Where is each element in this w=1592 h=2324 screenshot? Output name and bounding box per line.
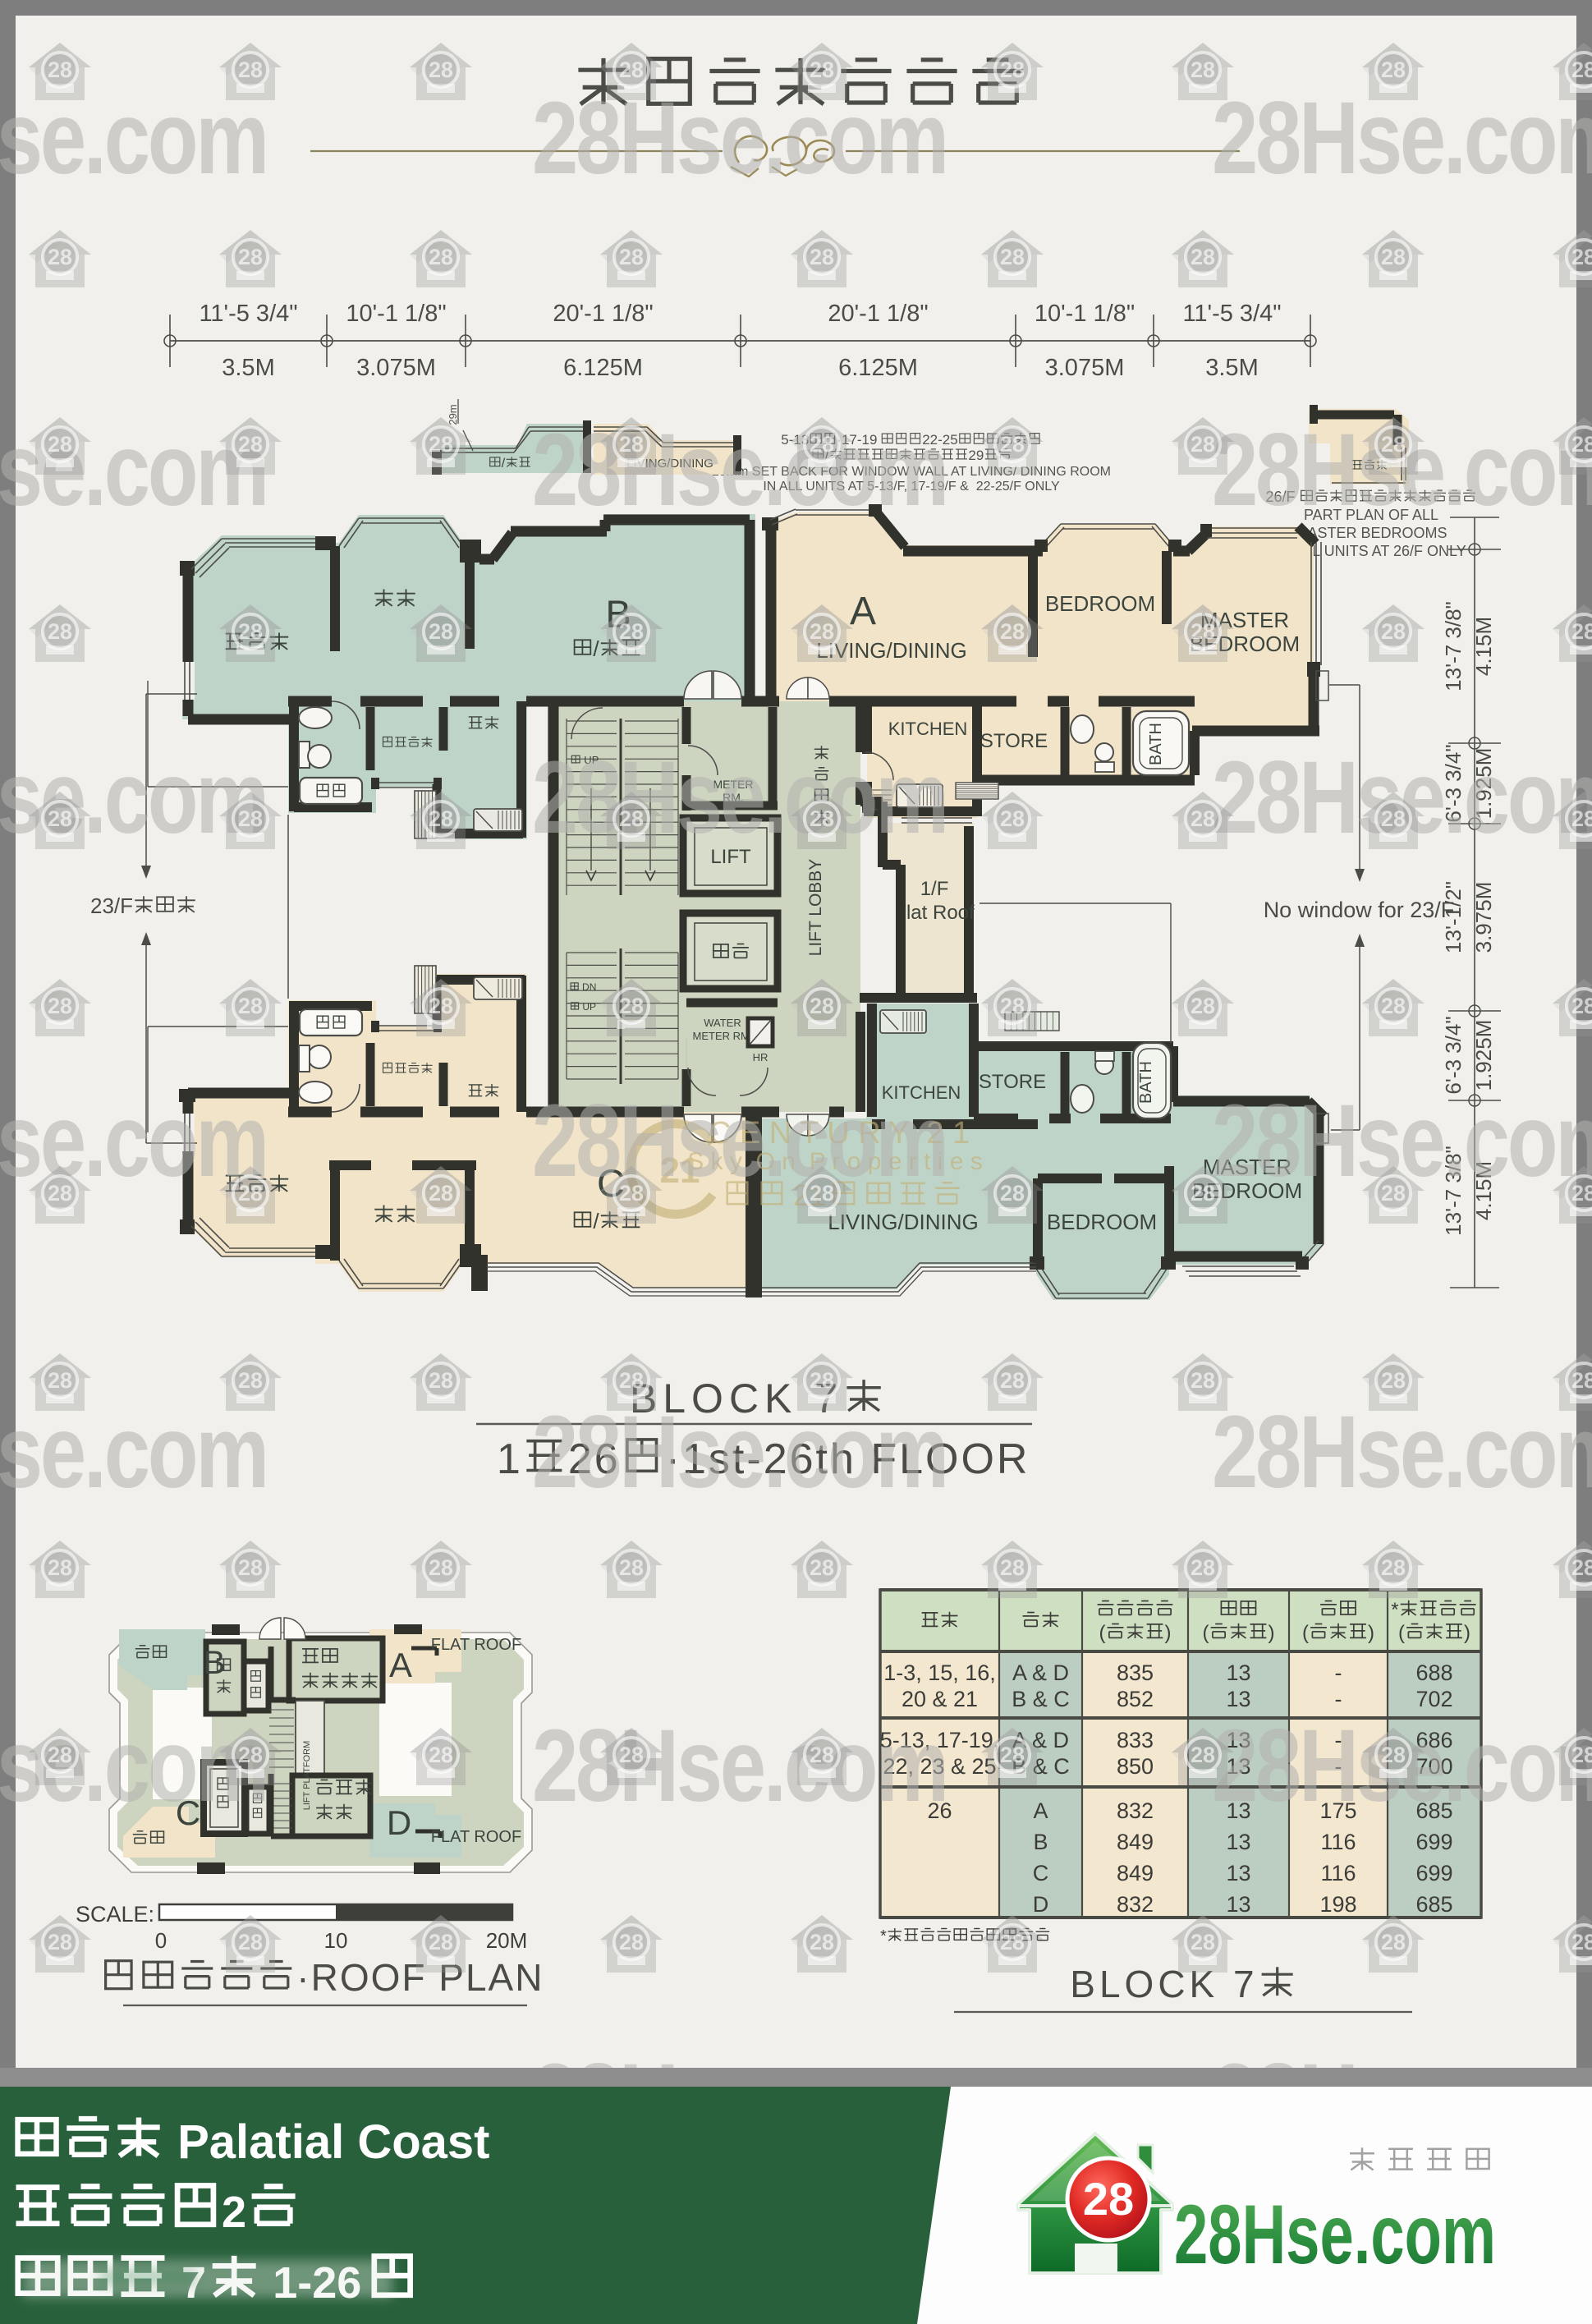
svg-text:MASTER BEDROOMS: MASTER BEDROOMS <box>1295 525 1447 541</box>
svg-text:28: 28 <box>1571 1555 1592 1580</box>
svg-text:): ) <box>1165 1622 1172 1644</box>
svg-text:BATH: BATH <box>1137 1061 1155 1104</box>
svg-text:198: 198 <box>1319 1892 1356 1917</box>
svg-text:835: 835 <box>1117 1660 1154 1685</box>
svg-text:STORE: STORE <box>979 1071 1046 1093</box>
svg-text:28: 28 <box>619 432 644 457</box>
svg-text:28Hse.com: 28Hse.com <box>532 1395 947 1509</box>
svg-text:20'-1 1/8": 20'-1 1/8" <box>553 301 653 327</box>
svg-text:1-3, 15, 16,: 1-3, 15, 16, <box>883 1660 996 1685</box>
svg-text:28: 28 <box>1000 432 1025 457</box>
svg-text:-: - <box>1335 1660 1342 1685</box>
svg-text:*: * <box>1391 1599 1398 1621</box>
svg-text:28: 28 <box>238 994 263 1018</box>
svg-text:28: 28 <box>238 1368 263 1393</box>
svg-text:11'-5 3/4": 11'-5 3/4" <box>1182 301 1281 327</box>
svg-text:28: 28 <box>429 1555 453 1580</box>
svg-text:3.075M: 3.075M <box>356 355 436 381</box>
svg-text:850: 850 <box>1117 1754 1154 1779</box>
svg-text:(: ( <box>1203 1622 1209 1644</box>
svg-text:B: B <box>204 1645 226 1681</box>
svg-text:10'-1 1/8": 10'-1 1/8" <box>1035 301 1135 327</box>
svg-text:A: A <box>389 1646 412 1684</box>
svg-text:28: 28 <box>1191 806 1215 831</box>
svg-text:28: 28 <box>810 994 834 1018</box>
svg-text:116: 116 <box>1320 1830 1356 1854</box>
svg-text:FLAT ROOF: FLAT ROOF <box>431 1828 521 1846</box>
svg-text:LIFT LOBBY: LIFT LOBBY <box>806 859 825 957</box>
svg-text:28: 28 <box>619 1743 644 1767</box>
svg-text:28: 28 <box>810 1181 834 1206</box>
svg-text:28: 28 <box>1000 1368 1025 1393</box>
svg-text:28: 28 <box>429 806 453 831</box>
svg-text:28: 28 <box>1083 2173 1134 2225</box>
svg-text:STORE: STORE <box>980 730 1048 752</box>
svg-text:13: 13 <box>1226 1830 1250 1854</box>
svg-text:13: 13 <box>1226 1687 1250 1711</box>
svg-text:(: ( <box>1398 1622 1405 1644</box>
svg-text:28Hse.com: 28Hse.com <box>532 1084 947 1198</box>
svg-text:685: 685 <box>1415 1892 1452 1917</box>
svg-text:28: 28 <box>1191 245 1215 269</box>
svg-text:20'-1 1/8": 20'-1 1/8" <box>828 301 928 327</box>
svg-text:28: 28 <box>619 1930 644 1954</box>
svg-text:10'-1 1/8": 10'-1 1/8" <box>346 301 446 327</box>
svg-text:23/F: 23/F <box>90 893 133 918</box>
svg-text:HR: HR <box>753 1051 768 1063</box>
svg-text:28Hse.com: 28Hse.com <box>0 1084 267 1198</box>
svg-text:-: - <box>1335 1687 1342 1711</box>
svg-text:28: 28 <box>810 1555 834 1580</box>
svg-text:28: 28 <box>619 1368 644 1393</box>
svg-text:28: 28 <box>810 245 834 269</box>
svg-text:): ) <box>1269 1622 1275 1644</box>
svg-text:METER RM.: METER RM. <box>693 1030 753 1042</box>
svg-text:11'-5 3/4": 11'-5 3/4" <box>199 301 297 327</box>
svg-text:Palatial Coast: Palatial Coast <box>164 2115 489 2169</box>
svg-text:28: 28 <box>1000 1181 1025 1206</box>
svg-text:28: 28 <box>238 1743 263 1767</box>
svg-text:1.925M: 1.925M <box>1471 1020 1496 1091</box>
svg-text:28: 28 <box>810 57 834 82</box>
svg-text:28: 28 <box>238 245 263 269</box>
svg-text:28: 28 <box>48 1743 72 1767</box>
svg-text:D: D <box>1033 1892 1049 1917</box>
svg-text:28: 28 <box>619 1181 644 1206</box>
svg-text:28: 28 <box>1381 1181 1406 1206</box>
svg-text:BEDROOM: BEDROOM <box>1047 1210 1157 1234</box>
svg-text:28: 28 <box>238 619 263 644</box>
svg-text:): ) <box>1368 1622 1374 1644</box>
svg-text:LIVING/DINING: LIVING/DINING <box>828 1210 978 1234</box>
svg-text:28: 28 <box>1571 432 1592 457</box>
svg-text:(: ( <box>1302 1622 1309 1644</box>
svg-text:20 & 21: 20 & 21 <box>902 1687 978 1711</box>
svg-text:28: 28 <box>619 57 644 82</box>
svg-text:28: 28 <box>429 432 453 457</box>
svg-text:116: 116 <box>1320 1861 1356 1885</box>
svg-text:28: 28 <box>48 619 72 644</box>
svg-text:28: 28 <box>810 1930 834 1954</box>
svg-text:28: 28 <box>1000 994 1025 1018</box>
svg-text:A: A <box>850 590 876 633</box>
svg-text:28: 28 <box>1571 245 1592 269</box>
svg-text:28: 28 <box>48 57 72 82</box>
svg-text:28: 28 <box>1191 994 1215 1018</box>
svg-text:28Hse.com: 28Hse.com <box>532 81 947 195</box>
svg-text:No window for 23/F: No window for 23/F <box>1264 898 1455 922</box>
svg-text:13'-7 3/8": 13'-7 3/8" <box>1441 601 1466 691</box>
svg-text:28: 28 <box>619 245 644 269</box>
svg-text:/: / <box>593 1209 599 1233</box>
svg-text:Flat Roof: Flat Roof <box>894 902 975 924</box>
svg-text:28: 28 <box>429 1930 453 1954</box>
svg-text:28: 28 <box>1571 806 1592 831</box>
svg-text:688: 688 <box>1415 1660 1452 1685</box>
svg-text:28: 28 <box>1381 1368 1406 1393</box>
svg-text:/: / <box>502 457 506 471</box>
svg-text:28: 28 <box>1381 1555 1406 1580</box>
svg-text:28: 28 <box>619 806 644 831</box>
svg-text:*: * <box>880 1927 887 1945</box>
svg-text:13: 13 <box>1226 1892 1250 1917</box>
svg-text:28: 28 <box>429 57 453 82</box>
svg-text:BATH: BATH <box>1147 723 1165 765</box>
svg-text:BEDROOM: BEDROOM <box>1045 591 1155 616</box>
svg-text:28: 28 <box>619 1555 644 1580</box>
svg-text:29m: 29m <box>447 404 459 425</box>
svg-text:28: 28 <box>48 1930 72 1954</box>
svg-text:BLOCK 7: BLOCK 7 <box>1070 1963 1258 2005</box>
svg-text:832: 832 <box>1117 1892 1154 1917</box>
svg-text:28: 28 <box>1191 1555 1215 1580</box>
svg-text:3.975M: 3.975M <box>1471 882 1496 953</box>
svg-text:0: 0 <box>155 1928 167 1953</box>
svg-text:28: 28 <box>48 1555 72 1580</box>
svg-text:28: 28 <box>1000 1930 1025 1954</box>
svg-text:28: 28 <box>48 994 72 1018</box>
svg-text:29: 29 <box>968 448 984 463</box>
svg-text:28: 28 <box>1191 1181 1215 1206</box>
svg-text:(: ( <box>1099 1622 1106 1644</box>
svg-text:28: 28 <box>48 1368 72 1393</box>
svg-text:28: 28 <box>429 1181 453 1206</box>
svg-text:28: 28 <box>810 432 834 457</box>
svg-text:1/F: 1/F <box>920 878 949 900</box>
svg-text:SCALE:: SCALE: <box>76 1902 154 1927</box>
svg-text:B: B <box>1033 1830 1048 1854</box>
svg-text:28: 28 <box>1381 57 1406 82</box>
svg-text:832: 832 <box>1117 1798 1154 1823</box>
svg-text:UP: UP <box>580 1001 596 1013</box>
svg-text:28: 28 <box>1000 619 1025 644</box>
svg-text:D: D <box>387 1803 411 1842</box>
svg-text:C: C <box>1033 1861 1049 1885</box>
svg-text:3.5M: 3.5M <box>222 355 274 381</box>
svg-text:13: 13 <box>1226 1861 1250 1885</box>
svg-text:28Hse.com: 28Hse.com <box>532 1709 947 1823</box>
svg-text:28: 28 <box>810 1743 834 1767</box>
svg-text:A: A <box>1033 1798 1048 1823</box>
svg-text:DN: DN <box>580 981 597 993</box>
svg-text:28: 28 <box>1191 1368 1215 1393</box>
svg-text:28: 28 <box>810 1368 834 1393</box>
svg-text:28Hse.com: 28Hse.com <box>0 1395 267 1509</box>
svg-text:699: 699 <box>1415 1830 1452 1854</box>
svg-text:13: 13 <box>1226 1660 1250 1685</box>
svg-text:28: 28 <box>1191 57 1215 82</box>
svg-text:28: 28 <box>238 806 263 831</box>
svg-text:28Hse.com: 28Hse.com <box>532 413 947 527</box>
svg-text:2: 2 <box>222 2188 246 2237</box>
svg-text:28: 28 <box>1381 619 1406 644</box>
svg-text:28: 28 <box>429 1368 453 1393</box>
svg-text:28: 28 <box>238 1930 263 1954</box>
svg-text:LIFT PLATFORM: LIFT PLATFORM <box>302 1741 312 1811</box>
svg-text:28: 28 <box>1000 1743 1025 1767</box>
svg-text:4.15M: 4.15M <box>1471 617 1496 676</box>
svg-text:28: 28 <box>1000 57 1025 82</box>
svg-text:28: 28 <box>619 994 644 1018</box>
svg-text:): ) <box>1464 1622 1470 1644</box>
svg-text:6'-3 3/4": 6'-3 3/4" <box>1441 1016 1466 1094</box>
svg-text:6.125M: 6.125M <box>838 355 918 381</box>
svg-text:KITCHEN: KITCHEN <box>888 719 968 739</box>
svg-text:28: 28 <box>1381 1930 1406 1954</box>
svg-text:28: 28 <box>429 994 453 1018</box>
svg-text:28: 28 <box>1000 245 1025 269</box>
svg-text:849: 849 <box>1117 1861 1154 1885</box>
svg-text:B & C: B & C <box>1012 1687 1070 1711</box>
svg-text:A & D: A & D <box>1012 1660 1069 1685</box>
svg-text:28: 28 <box>1191 432 1215 457</box>
svg-text:28: 28 <box>1571 994 1592 1018</box>
svg-text:28: 28 <box>1381 1743 1406 1767</box>
svg-text:28Hse.com: 28Hse.com <box>1212 1395 1592 1509</box>
svg-text:28: 28 <box>238 1181 263 1206</box>
svg-text:28: 28 <box>1571 1930 1592 1954</box>
svg-text:833: 833 <box>1117 1728 1154 1752</box>
svg-text:28: 28 <box>1571 619 1592 644</box>
svg-text:3.075M: 3.075M <box>1045 355 1125 381</box>
svg-text:28Hse.com: 28Hse.com <box>532 741 947 855</box>
svg-text:28: 28 <box>429 619 453 644</box>
svg-text:849: 849 <box>1117 1830 1154 1854</box>
svg-text:702: 702 <box>1415 1687 1452 1711</box>
svg-text:28: 28 <box>238 1555 263 1580</box>
svg-text:28: 28 <box>1571 1743 1592 1767</box>
svg-text:28: 28 <box>810 806 834 831</box>
svg-text:28: 28 <box>1381 432 1406 457</box>
svg-text:28: 28 <box>1000 1555 1025 1580</box>
svg-text:20M: 20M <box>486 1928 528 1953</box>
svg-text:28: 28 <box>1381 994 1406 1018</box>
svg-text:28Hse.com: 28Hse.com <box>1174 2188 1496 2281</box>
svg-text:WATER: WATER <box>704 1017 741 1029</box>
svg-text:28: 28 <box>1381 806 1406 831</box>
svg-text:28: 28 <box>810 619 834 644</box>
svg-text:28: 28 <box>1571 1368 1592 1393</box>
svg-text:28: 28 <box>48 806 72 831</box>
svg-text:28: 28 <box>1191 619 1215 644</box>
svg-text:28: 28 <box>1191 1930 1215 1954</box>
svg-text:28: 28 <box>1381 245 1406 269</box>
svg-text:FLAT ROOF: FLAT ROOF <box>431 1636 521 1654</box>
svg-text:28: 28 <box>238 432 263 457</box>
svg-text:852: 852 <box>1117 1687 1154 1711</box>
svg-text:28: 28 <box>48 1181 72 1206</box>
svg-text:28: 28 <box>1571 57 1592 82</box>
svg-text:28: 28 <box>429 245 453 269</box>
svg-text:/: / <box>593 636 599 661</box>
svg-text:1: 1 <box>497 1435 523 1483</box>
svg-text:699: 699 <box>1415 1861 1452 1885</box>
svg-text:28: 28 <box>1191 1743 1215 1767</box>
svg-text:28: 28 <box>238 57 263 82</box>
svg-text:28: 28 <box>619 619 644 644</box>
svg-text:10: 10 <box>324 1928 348 1953</box>
svg-text:28: 28 <box>429 1743 453 1767</box>
svg-text:28: 28 <box>1000 806 1025 831</box>
svg-text:6.125M: 6.125M <box>563 355 643 381</box>
svg-text:28: 28 <box>48 245 72 269</box>
svg-text:28: 28 <box>48 432 72 457</box>
svg-text:3.5M: 3.5M <box>1205 355 1258 381</box>
svg-text:28: 28 <box>1571 1181 1592 1206</box>
svg-text:13'-1/2": 13'-1/2" <box>1441 881 1466 953</box>
